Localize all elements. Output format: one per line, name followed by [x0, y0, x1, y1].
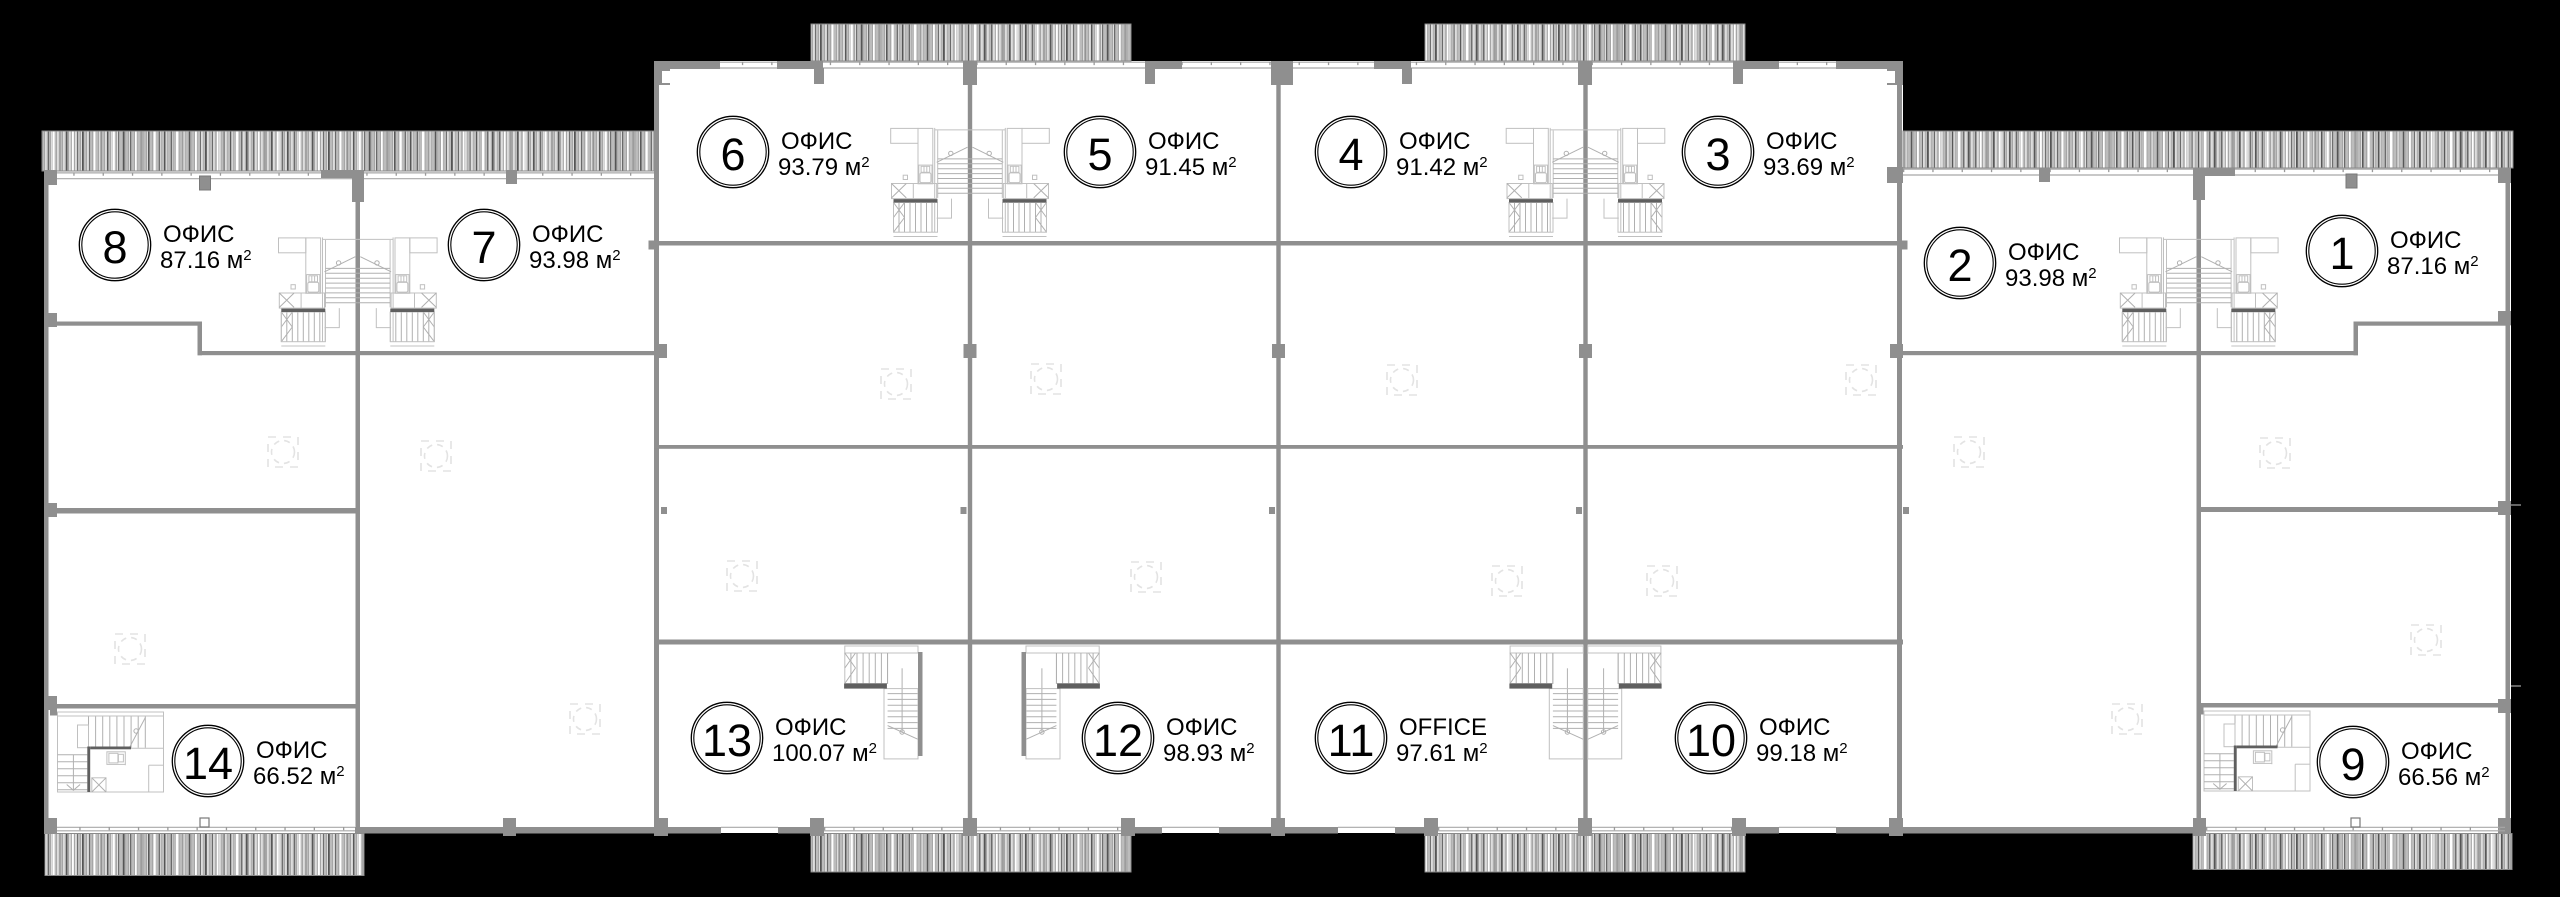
svg-text:1: 1 — [2329, 228, 2354, 279]
svg-text:11: 11 — [1328, 715, 1375, 766]
svg-text:3: 3 — [1705, 129, 1730, 180]
svg-text:13: 13 — [702, 715, 752, 766]
svg-text:6: 6 — [720, 129, 745, 180]
svg-text:14: 14 — [183, 738, 233, 789]
svg-text:ОФИС: ОФИС — [2390, 227, 2462, 254]
svg-text:ОФИС: ОФИС — [532, 221, 604, 248]
svg-text:87.16 м2: 87.16 м2 — [160, 247, 252, 274]
svg-text:99.18 м2: 99.18 м2 — [1756, 740, 1848, 767]
svg-text:ОФИС: ОФИС — [2008, 239, 2080, 266]
svg-text:10: 10 — [1686, 715, 1736, 766]
svg-text:OFFICE: OFFICE — [1399, 714, 1487, 741]
svg-text:91.42 м2: 91.42 м2 — [1396, 154, 1488, 181]
svg-text:93.98 м2: 93.98 м2 — [529, 247, 621, 274]
svg-text:98.93 м2: 98.93 м2 — [1163, 740, 1255, 767]
svg-text:91.45 м2: 91.45 м2 — [1145, 154, 1237, 181]
svg-text:ОФИС: ОФИС — [1148, 128, 1220, 155]
svg-text:9: 9 — [2340, 739, 2365, 790]
svg-text:93.79 м2: 93.79 м2 — [778, 154, 870, 181]
svg-text:ОФИС: ОФИС — [781, 128, 853, 155]
svg-text:4: 4 — [1338, 129, 1363, 180]
svg-text:93.98 м2: 93.98 м2 — [2005, 265, 2097, 292]
svg-text:8: 8 — [102, 222, 127, 273]
svg-text:97.61 м2: 97.61 м2 — [1396, 740, 1488, 767]
svg-text:5: 5 — [1087, 129, 1112, 180]
svg-text:87.16 м2: 87.16 м2 — [2387, 253, 2479, 280]
svg-text:ОФИС: ОФИС — [1759, 714, 1831, 741]
svg-text:66.56 м2: 66.56 м2 — [2398, 764, 2490, 791]
svg-text:100.07 м2: 100.07 м2 — [772, 740, 877, 767]
svg-text:2: 2 — [1947, 240, 1972, 291]
svg-text:ОФИС: ОФИС — [775, 714, 847, 741]
svg-text:66.52 м2: 66.52 м2 — [253, 763, 345, 790]
svg-text:12: 12 — [1093, 715, 1143, 766]
svg-text:ОФИС: ОФИС — [1399, 128, 1471, 155]
svg-text:93.69 м2: 93.69 м2 — [1763, 154, 1855, 181]
svg-text:ОФИС: ОФИС — [163, 221, 235, 248]
svg-text:ОФИС: ОФИС — [1766, 128, 1838, 155]
svg-text:ОФИС: ОФИС — [1166, 714, 1238, 741]
svg-text:ОФИС: ОФИС — [256, 737, 328, 764]
svg-text:ОФИС: ОФИС — [2401, 738, 2473, 765]
svg-text:7: 7 — [471, 222, 496, 273]
